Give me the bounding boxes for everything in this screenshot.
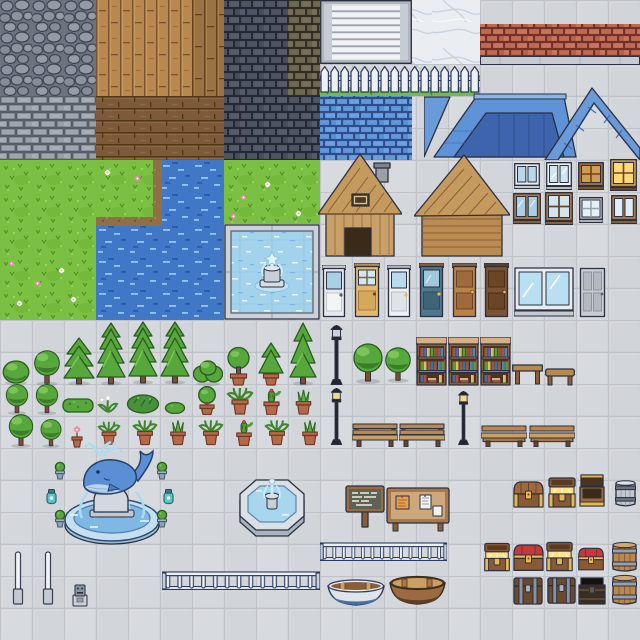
marble-tiles bbox=[412, 0, 480, 64]
leafy-bush bbox=[128, 395, 159, 413]
parking-meter bbox=[73, 585, 87, 606]
large-shop-window bbox=[514, 268, 574, 316]
blue-brick-wall bbox=[320, 96, 412, 160]
grid-wood-window bbox=[545, 193, 573, 225]
amber-window bbox=[578, 163, 604, 190]
railing bbox=[320, 542, 447, 563]
wood-plank-floor-dark bbox=[192, 0, 224, 96]
small-grey-barrel bbox=[616, 481, 636, 506]
red-treasure-chest bbox=[514, 545, 543, 570]
potted-snake-plant bbox=[171, 420, 185, 444]
black-chest bbox=[579, 578, 605, 604]
treasure-chest-closed bbox=[514, 482, 543, 507]
dark-brick-wall bbox=[288, 96, 320, 160]
olive-brick-wall bbox=[288, 0, 320, 96]
water-tiles bbox=[96, 224, 224, 320]
tall-wood-window bbox=[513, 194, 541, 224]
window-blinds bbox=[321, 1, 412, 64]
small-window bbox=[579, 198, 603, 223]
tiny-bush bbox=[166, 403, 185, 414]
red-treasure-chest bbox=[579, 548, 604, 570]
grass-field bbox=[0, 224, 96, 320]
pale-window bbox=[611, 196, 637, 224]
treasure-chest-open bbox=[547, 542, 572, 570]
wood-plank-floor bbox=[96, 0, 192, 96]
dark-strapped-chest bbox=[514, 578, 542, 604]
sand-shore bbox=[153, 160, 162, 220]
light-wood-door bbox=[452, 263, 477, 317]
sand-shore bbox=[96, 217, 162, 226]
treasure-chest-open bbox=[485, 543, 509, 570]
treasure-chest-open-empty bbox=[580, 475, 604, 506]
white-glass-door bbox=[322, 265, 346, 317]
bookshelf bbox=[448, 337, 479, 385]
teal-glass-door bbox=[419, 263, 444, 317]
potted-snake-plant bbox=[296, 390, 310, 414]
tan-pane-door bbox=[354, 263, 380, 317]
wood-barrel bbox=[613, 542, 637, 571]
potted-snake-plant bbox=[303, 420, 317, 444]
dark-strapped-chest bbox=[548, 578, 575, 603]
picket-fence bbox=[320, 64, 480, 96]
grey-panel-door bbox=[581, 269, 605, 317]
wood-barrel bbox=[613, 575, 637, 604]
hedge bbox=[63, 399, 93, 412]
cobblestone-tiles bbox=[0, 0, 96, 96]
bookshelf bbox=[480, 337, 511, 385]
lit-window bbox=[610, 160, 637, 191]
tileset-sheet: Pixel Town Tileset Sprite Sheet bbox=[0, 0, 640, 640]
dark-wood-door bbox=[484, 263, 509, 317]
treasure-chest-open bbox=[549, 478, 575, 507]
octagon-fountain bbox=[240, 479, 304, 536]
grass-field bbox=[0, 160, 160, 224]
grass-field bbox=[224, 160, 320, 224]
teal-lantern bbox=[47, 490, 56, 504]
tiled-pool-fountain bbox=[225, 225, 319, 319]
dark-brick-wall bbox=[224, 0, 288, 160]
tileset-canvas bbox=[0, 0, 640, 640]
water-tiles bbox=[160, 160, 224, 224]
red-brick-band bbox=[480, 24, 640, 56]
bookshelf bbox=[416, 337, 447, 385]
stone-brick-wall bbox=[0, 96, 96, 160]
wood-plank-floor-horizontal bbox=[96, 96, 224, 160]
white-window bbox=[514, 164, 540, 189]
trim-window bbox=[546, 163, 572, 190]
teal-lantern bbox=[164, 490, 173, 504]
railing bbox=[162, 571, 320, 592]
brick-ledge bbox=[481, 57, 640, 65]
white-blue-door bbox=[387, 265, 411, 317]
